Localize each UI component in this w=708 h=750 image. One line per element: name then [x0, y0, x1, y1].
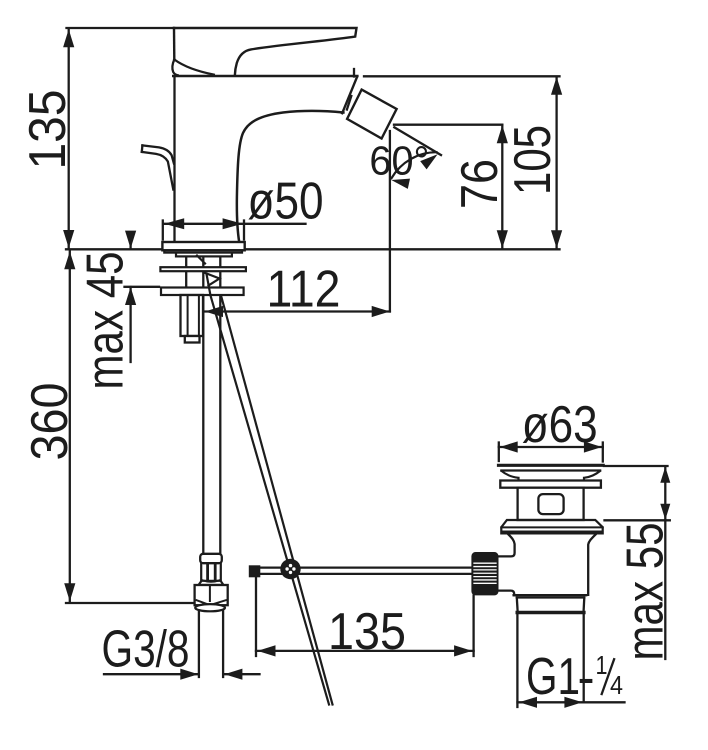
svg-text:105: 105: [504, 125, 562, 195]
svg-text:ø63: ø63: [522, 396, 598, 454]
svg-text:135: 135: [328, 603, 406, 661]
svg-text:135: 135: [19, 90, 77, 170]
svg-text:max 45: max 45: [77, 252, 135, 390]
svg-text:1: 1: [596, 650, 608, 680]
svg-text:G1: G1: [526, 648, 580, 706]
svg-text:4: 4: [610, 670, 623, 700]
svg-text:60°: 60°: [369, 138, 429, 184]
svg-text:ø50: ø50: [248, 173, 324, 231]
svg-text:360: 360: [21, 383, 79, 461]
svg-text:-: -: [577, 649, 594, 707]
svg-text:G3/8: G3/8: [102, 621, 190, 679]
svg-text:max 55: max 55: [617, 523, 675, 661]
svg-text:76: 76: [451, 159, 509, 209]
svg-text:112: 112: [267, 261, 341, 319]
